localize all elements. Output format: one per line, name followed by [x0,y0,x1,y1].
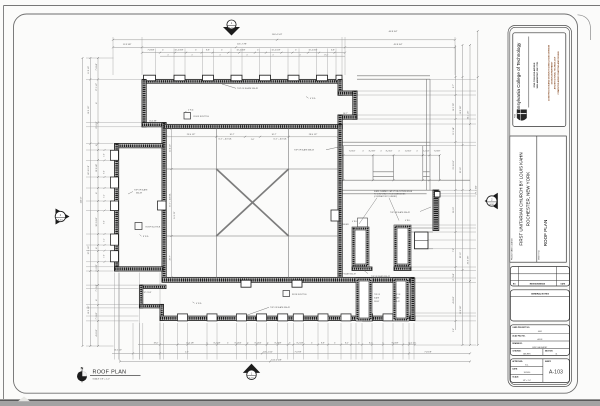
svg-text:10'-11 3/8": 10'-11 3/8" [175,50,184,52]
svg-text:334.49': 334.49' [136,193,143,195]
svg-text:45'-6 3/8": 45'-6 3/8" [468,255,470,264]
svg-text:8'-2 3/4": 8'-2 3/4" [386,150,393,152]
svg-text:110'-0": 110'-0" [80,196,82,203]
svg-text:23'-10": 23'-10" [460,167,462,173]
svg-text:16'-4 3/8": 16'-4 3/8" [149,121,157,123]
svg-text:10'-2 7/8": 10'-2 7/8" [453,103,455,111]
svg-text:42'-10 1/8": 42'-10 1/8" [88,165,90,175]
svg-text:SCALE:: SCALE: [512,375,519,378]
svg-text:4' R.D.: 4' R.D. [196,303,202,305]
svg-text:A-103: A-103 [538,338,543,341]
svg-text:7'-8 3/4": 7'-8 3/4" [349,150,356,152]
svg-text:FIRST UNITARIAN CHURCH BY LOUI: FIRST UNITARIAN CHURCH BY LOUIS KAHN [519,152,524,245]
svg-text:5'-4": 5'-4" [104,238,106,242]
svg-text:TOP OF SLATE 334.49': TOP OF SLATE 334.49' [270,306,291,309]
svg-text:10'-11 1/8": 10'-11 1/8" [272,50,281,52]
svg-text:ROCHESTER, NEW YORK: ROCHESTER, NEW YORK [525,172,530,226]
svg-text:11'-3 3/8": 11'-3 3/8" [123,44,132,46]
svg-text:28'-4 1/2": 28'-4 1/2" [309,134,318,136]
svg-text:4'-8 3/8": 4'-8 3/8" [453,296,455,303]
svg-text:8'-2 3/8": 8'-2 3/8" [275,343,282,345]
svg-text:SECTION:: SECTION: [545,351,554,353]
svg-text:8'-2 3/8": 8'-2 3/8" [369,150,376,152]
svg-text:11'-1 1/4": 11'-1 1/4" [453,127,455,135]
svg-text:TOP OF SLATE 334.49': TOP OF SLATE 334.49' [337,272,357,275]
svg-text:TOP OF: TOP OF [374,294,380,296]
svg-text:SHEET:: SHEET: [545,361,552,363]
svg-text:ERIC LAUGHREY: ERIC LAUGHREY [533,346,548,349]
svg-text:100'-4 1/4": 100'-4 1/4" [272,34,283,36]
svg-text:12'-7 1/4": 12'-7 1/4" [144,292,152,294]
svg-text:16'-7": 16'-7" [230,134,235,136]
svg-text:CONSTRUCTION AND DESIGN TECHNO: CONSTRUCTION AND DESIGN TECHNOLOGIES DIV… [548,44,551,101]
svg-text:16'-6" +- ACTUAL: 16'-6" +- ACTUAL [168,193,171,206]
svg-text:8'-0": 8'-0" [104,220,106,224]
svg-text:20'-7": 20'-7" [169,255,171,260]
svg-text:102'-0 1/8": 102'-0 1/8" [271,359,282,361]
svg-text:101'-1 1/2": 101'-1 1/2" [263,351,273,353]
svg-text:10'-11 3/8": 10'-11 3/8" [237,50,246,52]
svg-text:16'-6" +- ACTUAL: 16'-6" +- ACTUAL [218,138,231,141]
svg-text:16'-7": 16'-7" [272,134,277,136]
svg-text:TOP OF SLATE 338.43': TOP OF SLATE 338.43' [294,149,315,152]
svg-text:20'-10": 20'-10" [453,207,455,213]
svg-text:DATE:: DATE: [512,368,518,371]
svg-text:8'-2": 8'-2" [369,343,373,345]
svg-text:21'-4 1/2": 21'-4 1/2" [169,144,171,152]
svg-text:11'-2 1/4": 11'-2 1/4" [88,66,90,75]
svg-text:TOP OF SLATE 338.43': TOP OF SLATE 338.43' [371,275,391,278]
svg-text:7'-8": 7'-8" [453,248,455,252]
svg-text:9'-0 3/8": 9'-0 3/8" [392,343,399,345]
svg-text:(CONTRACTOR TO VERIFY): (CONTRACTOR TO VERIFY) [374,195,398,198]
svg-text:Pennsylvania College of Techno: Pennsylvania College of Technology [516,42,521,116]
svg-text:16'-7": 16'-7" [343,113,348,115]
svg-text:2' R.D.: 2' R.D. [188,110,194,112]
svg-text:8'-2": 8'-2" [345,343,349,345]
svg-text:TOP OF SLATE 334.49': TOP OF SLATE 334.49' [390,211,411,214]
svg-text:45'-8 3/4": 45'-8 3/4" [394,44,403,46]
svg-text:LADDER: LADDER [341,223,349,226]
svg-text:A-201: A-201 [249,377,254,380]
svg-text:6'-2": 6'-2" [104,194,106,198]
svg-text:10/24/00: 10/24/00 [524,372,531,374]
svg-text:7'-8 1/8": 7'-8 1/8" [424,351,432,353]
svg-text:ROOF PLAN: ROOF PLAN [543,220,548,247]
svg-text:8'-7": 8'-7" [453,84,455,88]
svg-text:2'-6": 2'-6" [185,351,189,353]
svg-text:7'-8 3/8": 7'-8 3/8" [148,50,155,52]
svg-text:A-201: A-201 [229,26,234,29]
svg-text:ROOF SCUTTLE: ROOF SCUTTLE [194,116,210,118]
svg-text:A-201: A-201 [58,219,63,222]
svg-text:8'-8": 8'-8" [206,50,210,52]
svg-text:23'-10 1/8": 23'-10 1/8" [453,160,455,169]
svg-text:16'-6" +- ACTUAL: 16'-6" +- ACTUAL [273,138,286,141]
svg-text:CHECKED:: CHECKED: [512,351,521,353]
svg-text:9'-2 1/8": 9'-2 1/8" [96,264,98,271]
svg-text:ROOF SCUTTLE: ROOF SCUTTLE [292,294,307,296]
svg-text:16'-5 1/2": 16'-5 1/2" [114,350,122,352]
svg-text:WILLIAMSPORT, PA 17701: WILLIAMSPORT, PA 17701 [536,61,539,89]
svg-text:APPROVED:: APPROVED: [512,360,523,363]
svg-text:4' R.D.: 4' R.D. [352,221,358,223]
svg-text:1/8" = 1'-0": 1/8" = 1'-0" [523,380,532,382]
svg-text:8'-2 1/8": 8'-2 1/8" [297,343,304,345]
svg-text:10'-2 1/2": 10'-2 1/2" [408,343,416,345]
svg-text:DESIGN DEPARTMENT: DESIGN DEPARTMENT [551,61,554,84]
svg-text:4'-4 1/4": 4'-4 1/4" [423,150,430,152]
svg-text:B.C.: B.C. [525,364,529,366]
svg-text:2'-6": 2'-6" [453,328,455,332]
svg-text:GENERAL NOTES: GENERAL NOTES [531,293,549,296]
svg-text:0001: 0001 [538,331,542,333]
svg-text:7'-6 7/8": 7'-6 7/8" [295,351,302,353]
svg-text:8'-2 3/4": 8'-2 3/4" [255,343,262,345]
svg-text:101'-7 7/8": 101'-7 7/8" [237,44,247,46]
svg-text:7'-8 3/4": 7'-8 3/4" [96,63,98,70]
svg-text:ROOF SCUTTLE: ROOF SCUTTLE [146,227,161,229]
svg-text:1'-8 3/4": 1'-8 3/4" [405,150,412,152]
svg-text:8'-8": 8'-8" [321,343,325,345]
svg-text:14'-0 1/2": 14'-0 1/2" [88,305,90,314]
svg-text:17'-1 1/2": 17'-1 1/2" [96,83,98,91]
svg-text:8'-7 3/4": 8'-7 3/4" [453,273,455,280]
svg-text:1'-8": 1'-8" [251,139,255,141]
svg-text:46'-8 3/4": 46'-8 3/4" [389,31,398,33]
svg-text:SCALE: 1/8" = 1'-0": SCALE: 1/8" = 1'-0" [93,378,111,381]
svg-text:TOP OF SLATE: TOP OF SLATE [134,189,148,192]
svg-text:N: N [81,367,84,371]
svg-text:TOP OF: TOP OF [395,294,401,296]
svg-text:A-103: A-103 [549,369,563,375]
svg-text:4'-8 1/8": 4'-8 1/8" [96,329,98,336]
svg-text:16'-2 7/8": 16'-2 7/8" [174,211,176,219]
svg-text:7'-2 3/4": 7'-2 3/4" [96,284,98,291]
svg-text:4' R.D.: 4' R.D. [405,220,411,222]
svg-text:REVISION/ISSUE: REVISION/ISSUE [530,283,546,285]
svg-text:16'-2 3/8": 16'-2 3/8" [460,105,462,114]
svg-text:ARCHER: ARCHER [523,353,531,356]
svg-text:6'-8": 6'-8" [331,50,335,52]
svg-text:334.49': 334.49' [374,301,380,303]
svg-text:17'-0": 17'-0" [324,55,329,57]
svg-text:A-201: A-201 [490,203,495,206]
svg-text:TOP OF SLATE 334.49': TOP OF SLATE 334.49' [237,87,259,90]
svg-text:8' R.D.: 8' R.D. [143,236,149,238]
svg-text:27'-1 3/4": 27'-1 3/4" [476,185,478,194]
svg-text:19'-0 1/2": 19'-0 1/2" [88,105,90,114]
svg-text:8'-5 1/8": 8'-5 1/8" [96,121,98,128]
svg-text:7'-0": 7'-0" [104,254,106,258]
svg-text:5'-0": 5'-0" [104,153,106,157]
svg-text:19'-0": 19'-0" [154,343,159,345]
svg-text:8'-2 3/4": 8'-2 3/4" [235,343,242,345]
svg-text:27'-5 1/2": 27'-5 1/2" [88,245,90,254]
svg-text:SHEET TITLE: SHEET TITLE [539,250,541,260]
svg-text:10'-9 1/4": 10'-9 1/4" [96,164,98,172]
svg-text:4' R.D.: 4' R.D. [310,98,316,100]
svg-text:CADD PROJECT NO.: CADD PROJECT NO. [512,326,530,329]
svg-text:DRAWN BY:: DRAWN BY: [512,342,522,345]
svg-text:ONE COLLEGE AVENUE: ONE COLLEGE AVENUE [533,62,536,87]
svg-text:29'-4 1/2": 29'-4 1/2" [187,134,196,136]
svg-text:ROOF PLAN: ROOF PLAN [93,370,127,376]
svg-text:23'-10": 23'-10" [460,252,462,258]
svg-text:ARCHITECTURAL TECHNOLOGY: ARCHITECTURAL TECHNOLOGY [554,56,557,89]
svg-text:30'-11 3/8": 30'-11 3/8" [96,217,98,226]
svg-text:338.43': 338.43' [395,301,401,303]
svg-text:7'-8 3/8": 7'-8 3/8" [434,150,441,152]
svg-text:NO.: NO. [513,283,517,285]
svg-text:8'-0": 8'-0" [104,170,106,174]
svg-text:ACAD FILE NO.: ACAD FILE NO. [512,334,525,337]
svg-text:COMPUTER AIDED DRAFTING AND DE: COMPUTER AIDED DRAFTING AND DESIGN [557,51,560,95]
svg-text:PENN: PENN [514,114,516,118]
svg-text:01: 01 [555,354,557,356]
